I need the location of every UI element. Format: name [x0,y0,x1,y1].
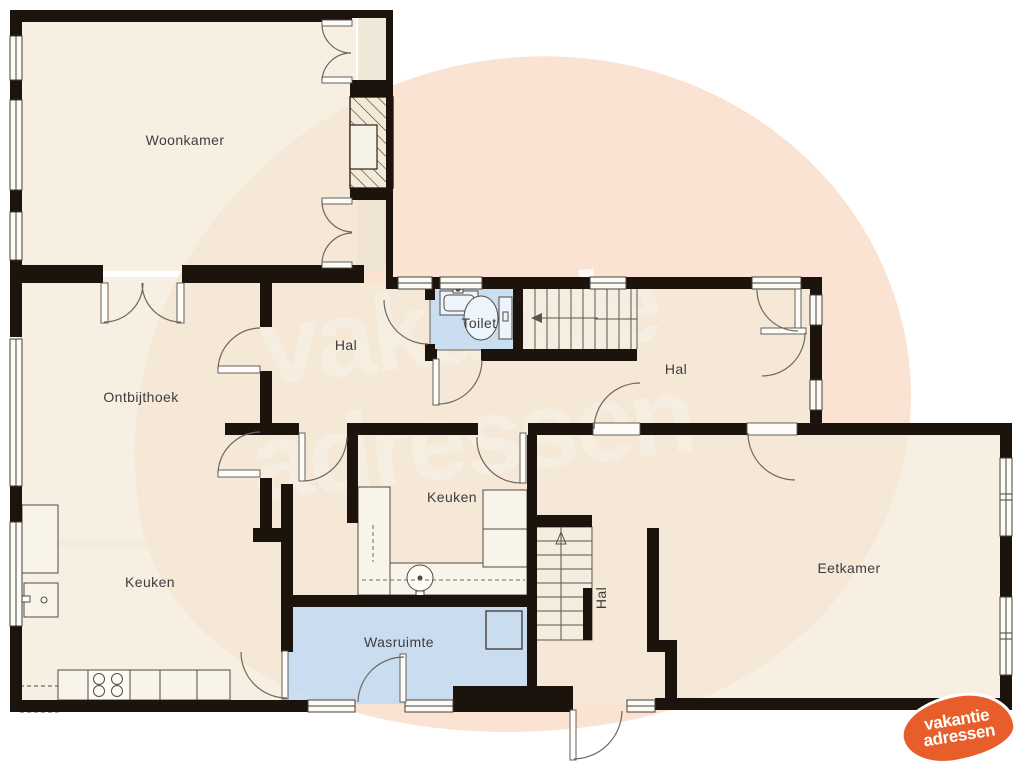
room-label-hal-onder: Hal [593,587,609,609]
floorplan-drawing [0,0,1024,768]
tall-cabinet [22,505,58,573]
floorplan-canvas: vakantie adressen [0,0,1024,768]
room-label-ontbijthoek: Ontbijthoek [103,389,178,405]
room-label-woonkamer: Woonkamer [146,132,225,148]
room-label-wasruimte: Wasruimte [364,634,434,650]
floor-eetkamer-hal [532,429,1006,702]
stairs-top [523,289,637,349]
room-label-toilet: Toilet [461,315,496,331]
counter-bottom [58,670,230,700]
room-label-hal-boven: Hal [335,337,357,353]
stove [88,670,130,700]
stairs-bottom [530,527,592,640]
floor-strip [266,429,352,601]
room-label-hal-rechts: Hal [665,361,687,377]
room-label-keuken-links: Keuken [125,574,175,590]
counter-left [358,487,390,595]
room-label-keuken-midden: Keuken [427,489,477,505]
room-label-eetkamer: Eetkamer [817,560,880,576]
